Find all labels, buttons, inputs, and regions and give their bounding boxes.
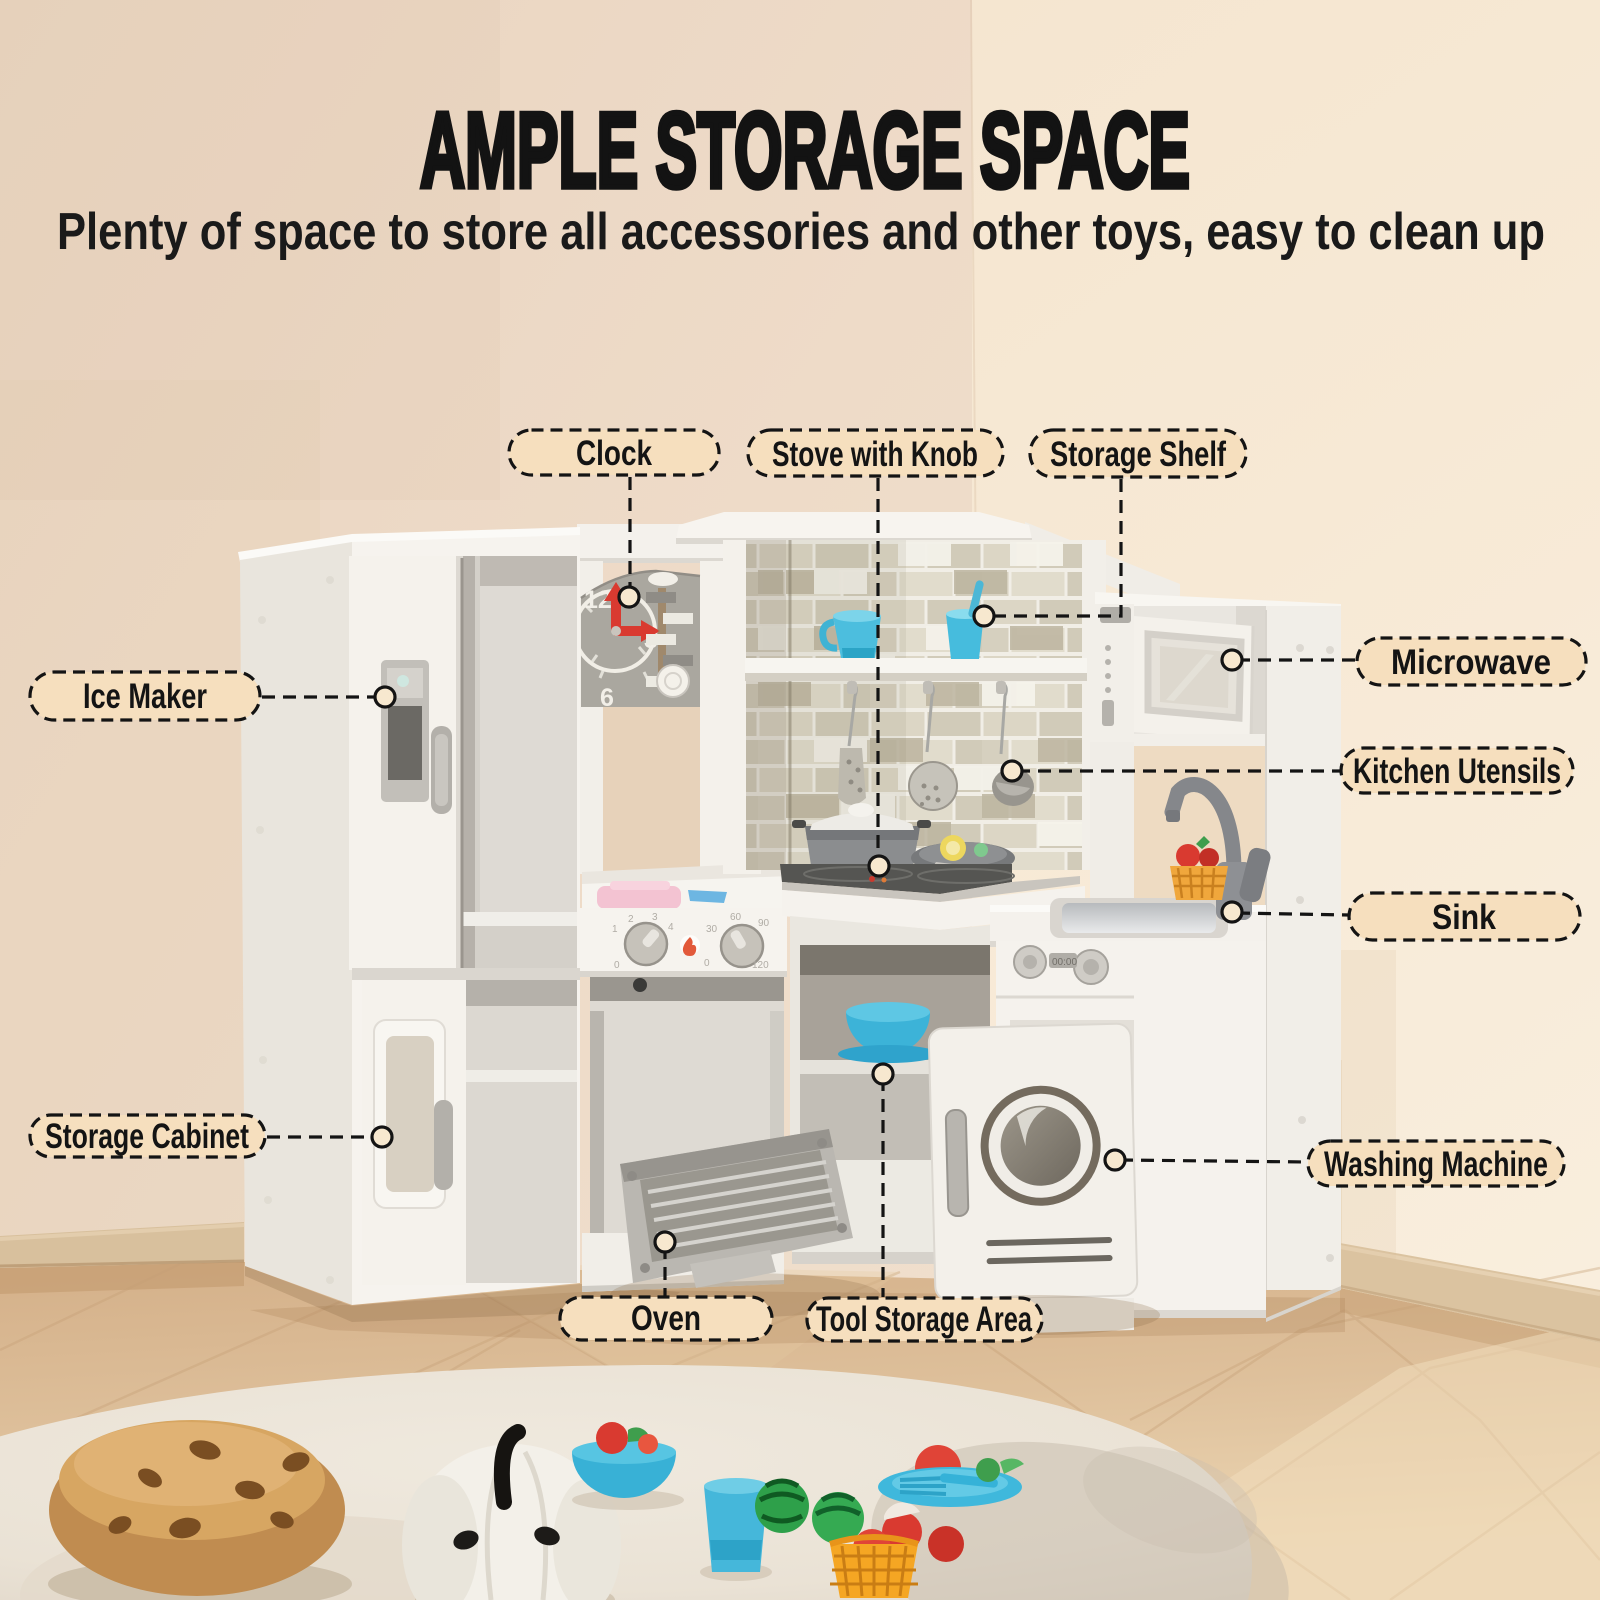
svg-text:3: 3: [652, 912, 658, 923]
svg-text:Tool Storage Area: Tool Storage Area: [816, 1300, 1032, 1339]
svg-text:4: 4: [668, 922, 674, 933]
svg-text:6: 6: [600, 684, 614, 712]
svg-text:90: 90: [758, 918, 770, 929]
svg-text:Microwave: Microwave: [1391, 643, 1551, 682]
svg-text:Sink: Sink: [1432, 898, 1496, 937]
svg-text:0: 0: [614, 960, 620, 971]
svg-text:00:00: 00:00: [1052, 957, 1077, 968]
svg-text:120: 120: [752, 960, 769, 971]
svg-text:2: 2: [628, 914, 634, 925]
svg-text:Washing Machine: Washing Machine: [1324, 1145, 1548, 1184]
svg-text:0: 0: [704, 958, 710, 969]
svg-text:30: 30: [706, 924, 718, 935]
svg-text:Kitchen Utensils: Kitchen Utensils: [1353, 752, 1561, 791]
svg-text:Storage Shelf: Storage Shelf: [1050, 435, 1226, 474]
svg-text:1: 1: [612, 924, 618, 935]
svg-text:Oven: Oven: [631, 1299, 701, 1338]
svg-text:AMPLE STORAGE SPACE: AMPLE STORAGE SPACE: [420, 90, 1190, 210]
svg-text:60: 60: [730, 912, 742, 923]
svg-text:Plenty of space to store all a: Plenty of space to store all accessories…: [57, 203, 1545, 261]
svg-text:Ice Maker: Ice Maker: [83, 677, 207, 716]
svg-text:Storage Cabinet: Storage Cabinet: [45, 1117, 249, 1156]
svg-text:Stove with Knob: Stove with Knob: [772, 435, 978, 474]
svg-text:Clock: Clock: [576, 434, 652, 473]
